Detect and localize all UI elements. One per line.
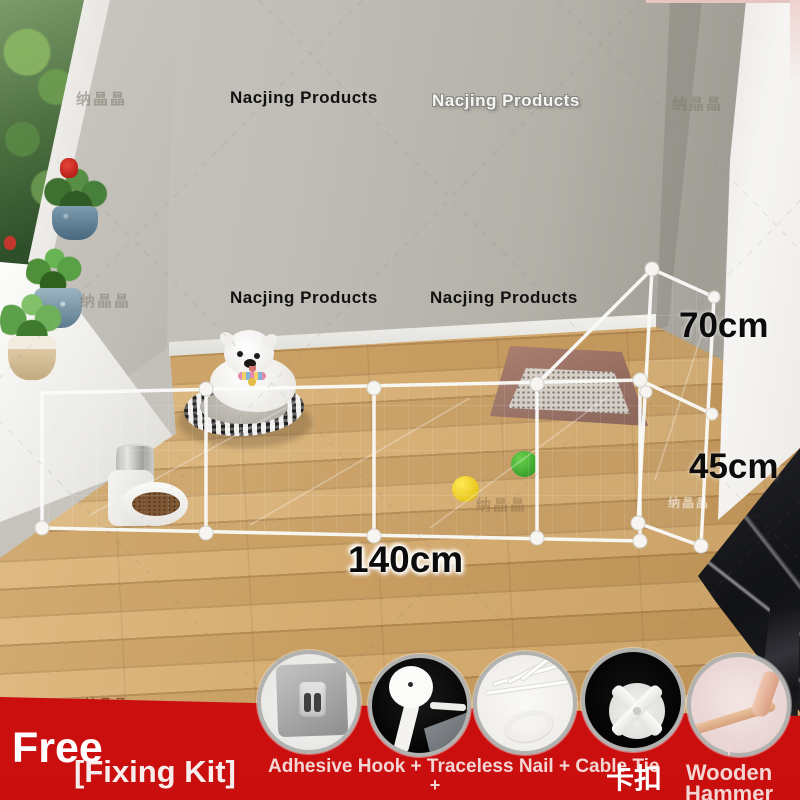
thumb-traceless-nail bbox=[368, 654, 471, 757]
plus-sign: + bbox=[268, 775, 602, 796]
hook-slot bbox=[314, 693, 321, 712]
watermark-text: 纳晶晶 bbox=[668, 494, 710, 511]
dimension-length: 140cm bbox=[348, 539, 463, 581]
hook-slot bbox=[304, 693, 311, 712]
thumb-cable-tie bbox=[473, 651, 577, 755]
plus-sign: + bbox=[676, 743, 782, 761]
nail-head bbox=[389, 666, 433, 708]
thumb-wooden-hammer bbox=[687, 653, 791, 757]
watermark-text: 纳晶晶 bbox=[76, 88, 127, 109]
nail-wall-piece bbox=[424, 712, 468, 757]
thumb-snap-buckle bbox=[581, 648, 685, 752]
watermark-text: 纳晶晶 bbox=[80, 290, 131, 311]
fixing-kit-label: [Fixing Kit] bbox=[74, 754, 236, 790]
brand-watermark: Nacjing Products bbox=[432, 91, 580, 111]
product-photo: 纳晶晶 纳晶晶 纳晶晶 纳晶晶 纳晶晶 纳晶晶 纳晶晶 纳晶晶 纳晶晶 纳晶晶 … bbox=[0, 0, 800, 800]
cable-tie-loop bbox=[502, 706, 556, 747]
watermark-text: 纳晶晶 bbox=[476, 494, 527, 515]
thumb-adhesive-hook bbox=[257, 650, 361, 754]
brand-watermark: Nacjing Products bbox=[230, 88, 378, 108]
watermark-text: 纳晶晶 bbox=[672, 93, 723, 114]
brand-watermark: Nacjing Products bbox=[230, 288, 378, 308]
nail-hole bbox=[408, 682, 413, 687]
buckle-caption: 卡扣 bbox=[598, 757, 670, 797]
buckle-pin bbox=[633, 707, 641, 715]
dimension-back-height: 70cm bbox=[679, 306, 769, 346]
nail-bar bbox=[430, 702, 466, 711]
brand-watermark: Nacjing Products bbox=[430, 288, 578, 308]
hammer-head bbox=[750, 669, 781, 718]
dimension-front-height: 45cm bbox=[689, 447, 779, 487]
hammer-caption-line2: Hammer bbox=[676, 781, 782, 800]
